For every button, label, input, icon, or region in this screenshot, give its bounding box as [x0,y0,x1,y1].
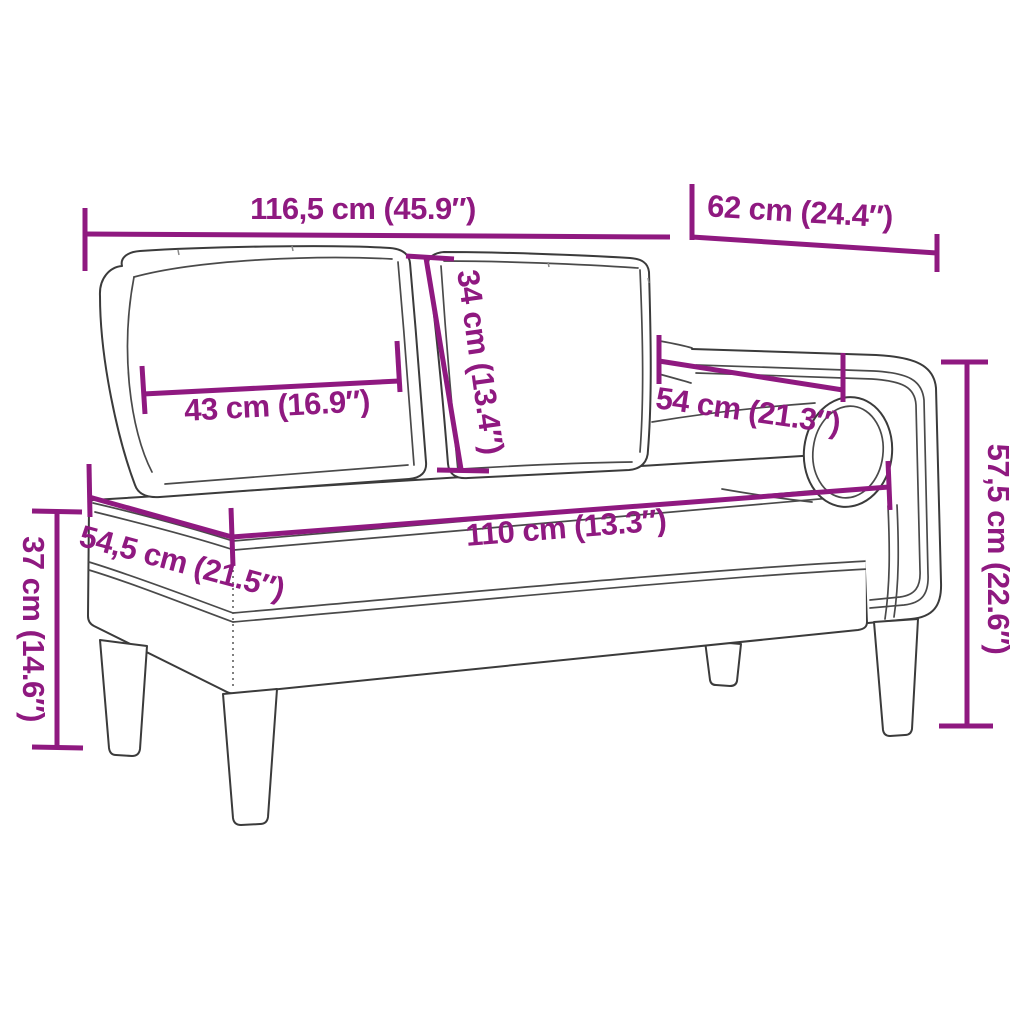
sofa-line-drawing [0,0,1024,1024]
leg-front-left [223,689,277,825]
leg-front-right [874,619,918,736]
leg-back-left [100,640,147,756]
back-cushion-left [100,246,426,497]
product-dimension-diagram: 116,5 cm (45.9″) 62 cm (24.4″) 43 cm (16… [0,0,1024,1024]
dim-label-total-width: 116,5 cm (45.9″) [250,191,476,227]
dim-label-seat-height: 37 cm (14.6″) [15,536,51,722]
leg-back-right [705,641,741,686]
dim-label-total-height: 57,5 cm (22.6″) [980,444,1016,655]
